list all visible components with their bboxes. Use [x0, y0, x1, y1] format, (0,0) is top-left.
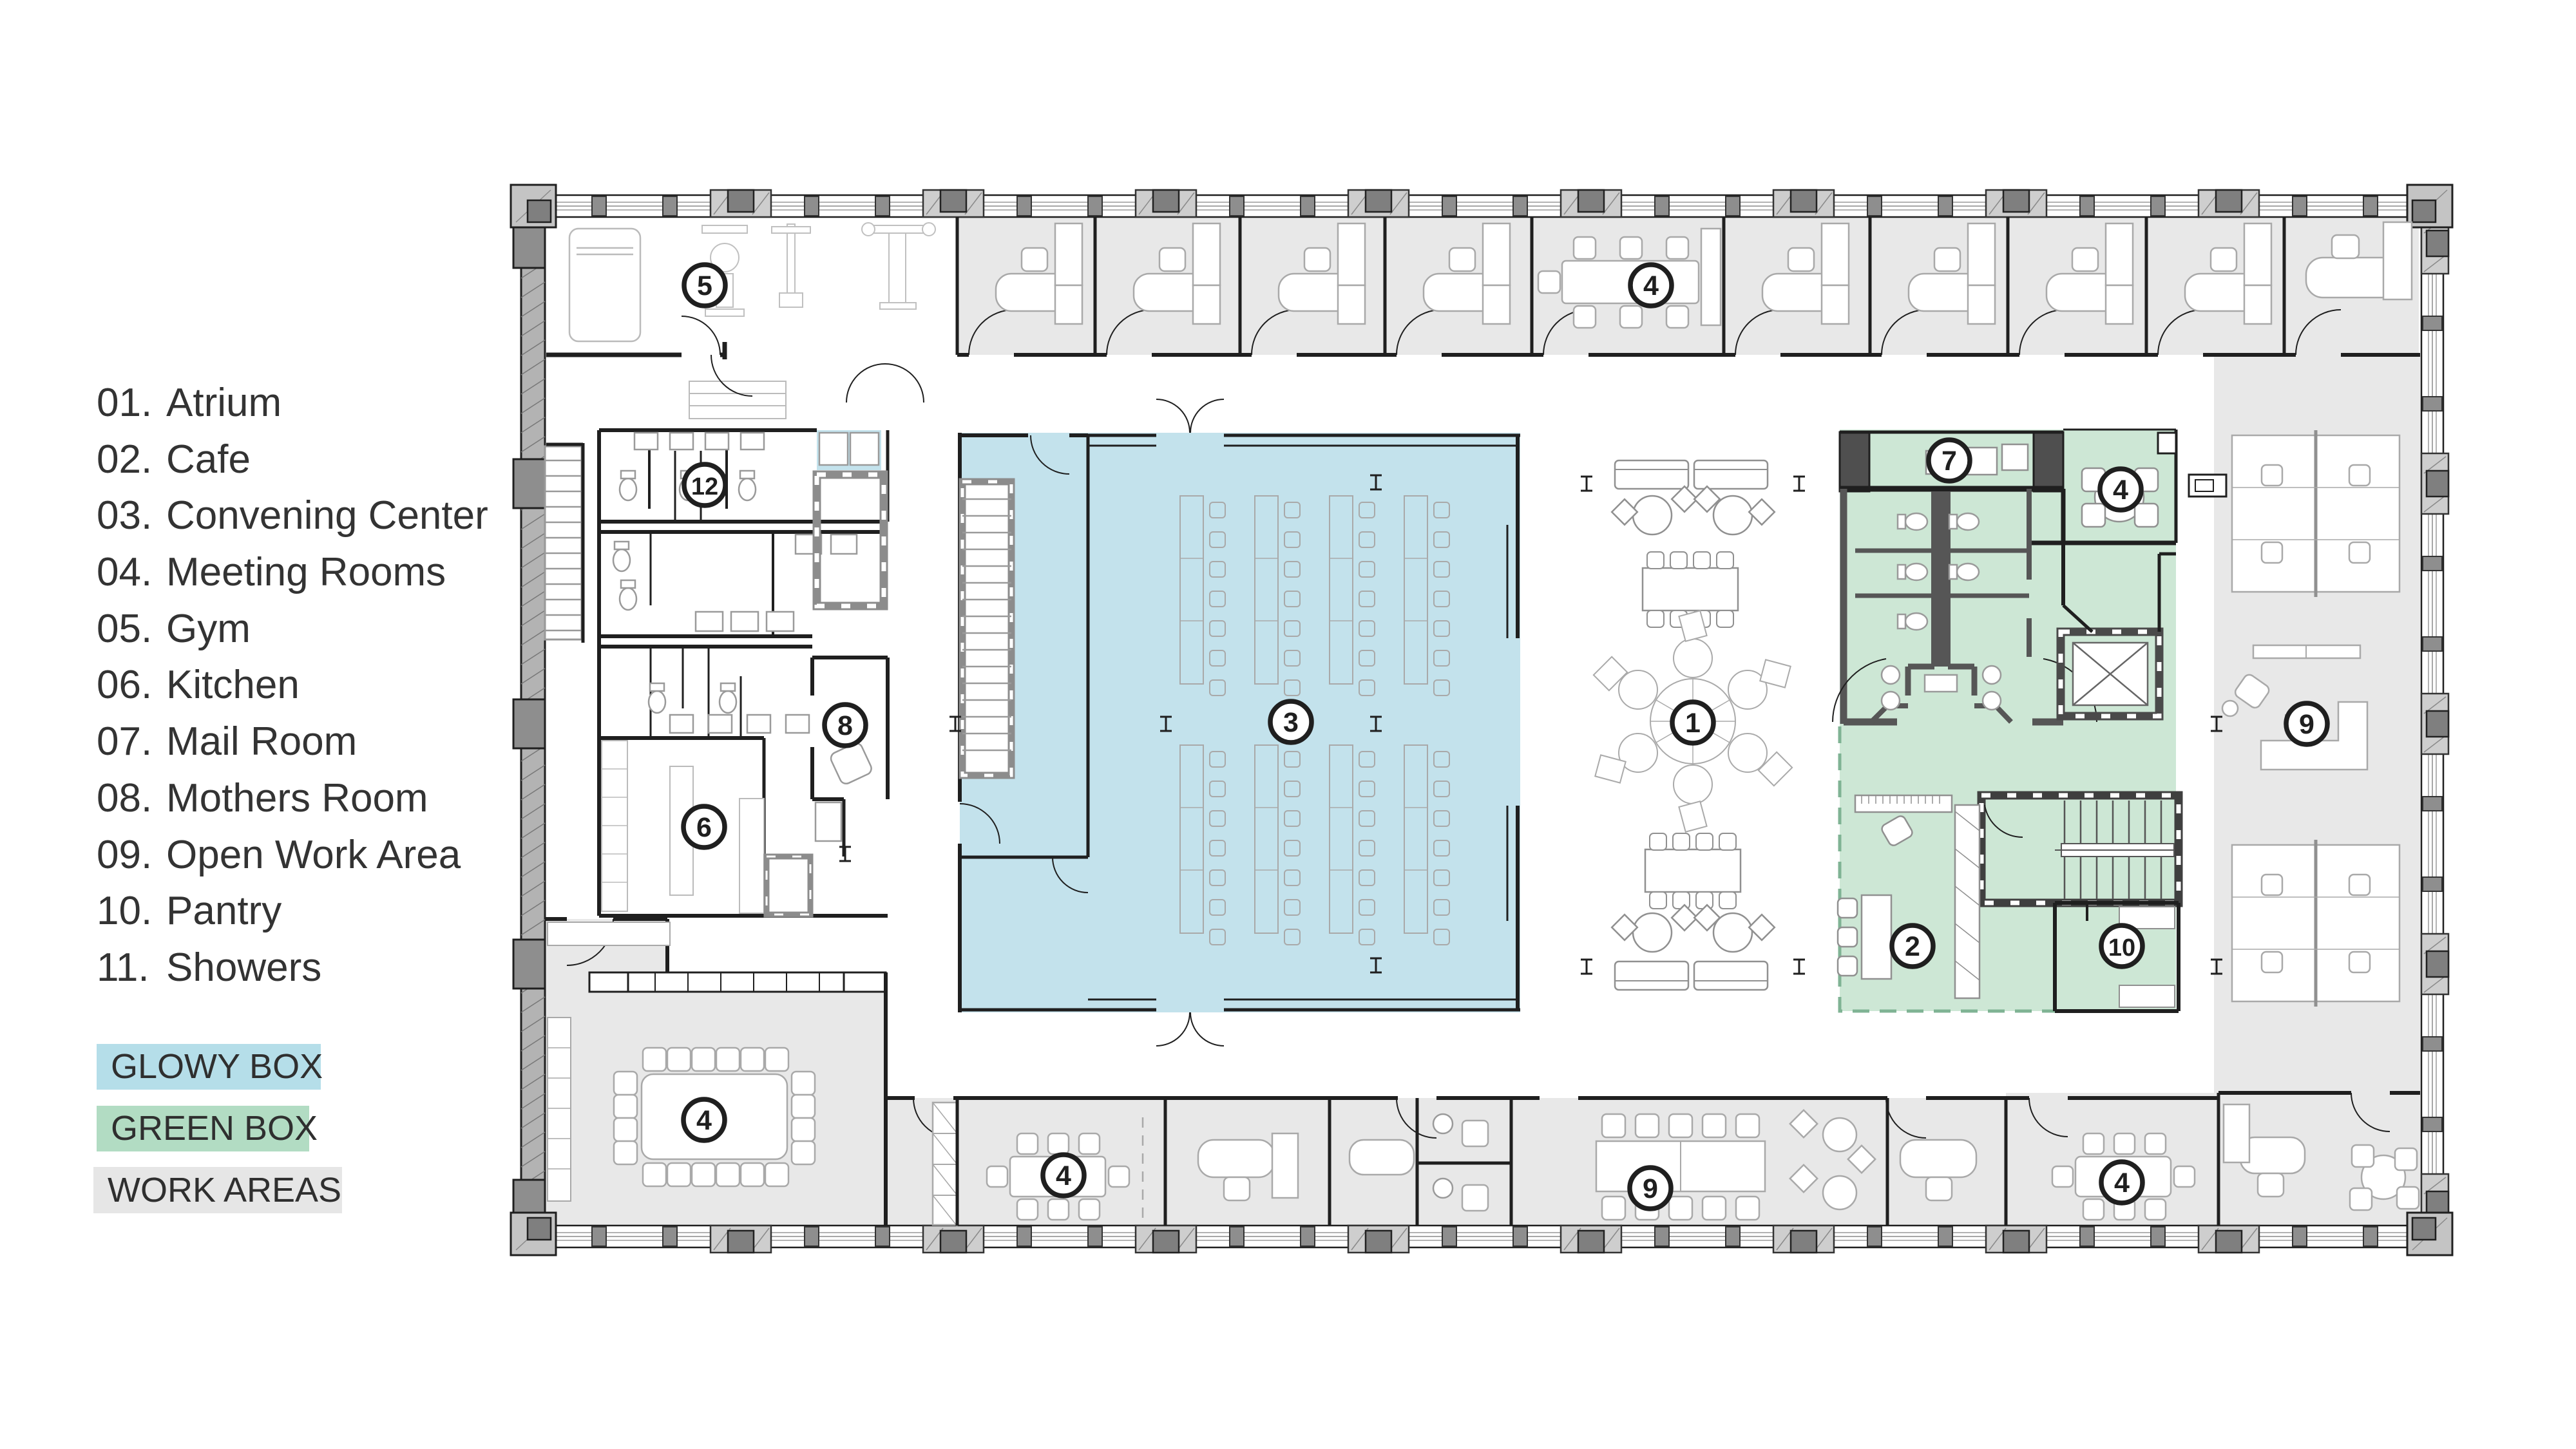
svg-text:Meeting Rooms: Meeting Rooms — [166, 550, 446, 594]
svg-text:Showers: Showers — [166, 945, 321, 990]
svg-text:9: 9 — [1643, 1173, 1658, 1204]
svg-text:Gym: Gym — [166, 607, 251, 651]
svg-text:Mothers Room: Mothers Room — [166, 776, 428, 820]
svg-text:1: 1 — [1685, 708, 1701, 739]
svg-text:6: 6 — [696, 812, 712, 843]
svg-text:07.: 07. — [97, 719, 152, 764]
svg-text:02.: 02. — [97, 437, 152, 482]
svg-text:Open Work Area: Open Work Area — [166, 833, 461, 877]
svg-text:09.: 09. — [97, 833, 152, 877]
svg-text:3: 3 — [1283, 707, 1299, 738]
svg-text:GLOWY BOX: GLOWY BOX — [111, 1047, 323, 1086]
svg-text:4: 4 — [2113, 475, 2128, 506]
svg-text:06.: 06. — [97, 663, 152, 707]
svg-text:01.: 01. — [97, 381, 152, 425]
svg-text:WORK AREAS: WORK AREAS — [108, 1171, 341, 1209]
svg-text:4: 4 — [1643, 270, 1659, 301]
svg-text:9: 9 — [2299, 709, 2314, 740]
svg-text:10: 10 — [2108, 934, 2135, 961]
svg-text:11.: 11. — [97, 945, 149, 990]
svg-text:10.: 10. — [97, 889, 152, 933]
svg-text:08.: 08. — [97, 776, 152, 820]
svg-text:Convening Center: Convening Center — [166, 493, 488, 538]
svg-text:4: 4 — [2114, 1168, 2130, 1198]
svg-text:4: 4 — [696, 1105, 712, 1136]
svg-text:GREEN BOX: GREEN BOX — [111, 1109, 318, 1148]
svg-text:04.: 04. — [97, 550, 152, 594]
svg-text:4: 4 — [1056, 1160, 1071, 1191]
svg-text:Cafe: Cafe — [166, 437, 251, 482]
svg-text:Kitchen: Kitchen — [166, 663, 300, 707]
svg-text:5: 5 — [697, 270, 712, 301]
svg-text:Pantry: Pantry — [166, 889, 281, 933]
svg-text:03.: 03. — [97, 493, 152, 538]
svg-text:Atrium: Atrium — [166, 381, 281, 425]
svg-text:Mail Room: Mail Room — [166, 719, 357, 764]
svg-text:7: 7 — [1942, 446, 1957, 477]
svg-text:8: 8 — [837, 710, 853, 741]
svg-text:05.: 05. — [97, 607, 152, 651]
svg-text:2: 2 — [1905, 931, 1920, 962]
svg-text:12: 12 — [691, 473, 718, 500]
